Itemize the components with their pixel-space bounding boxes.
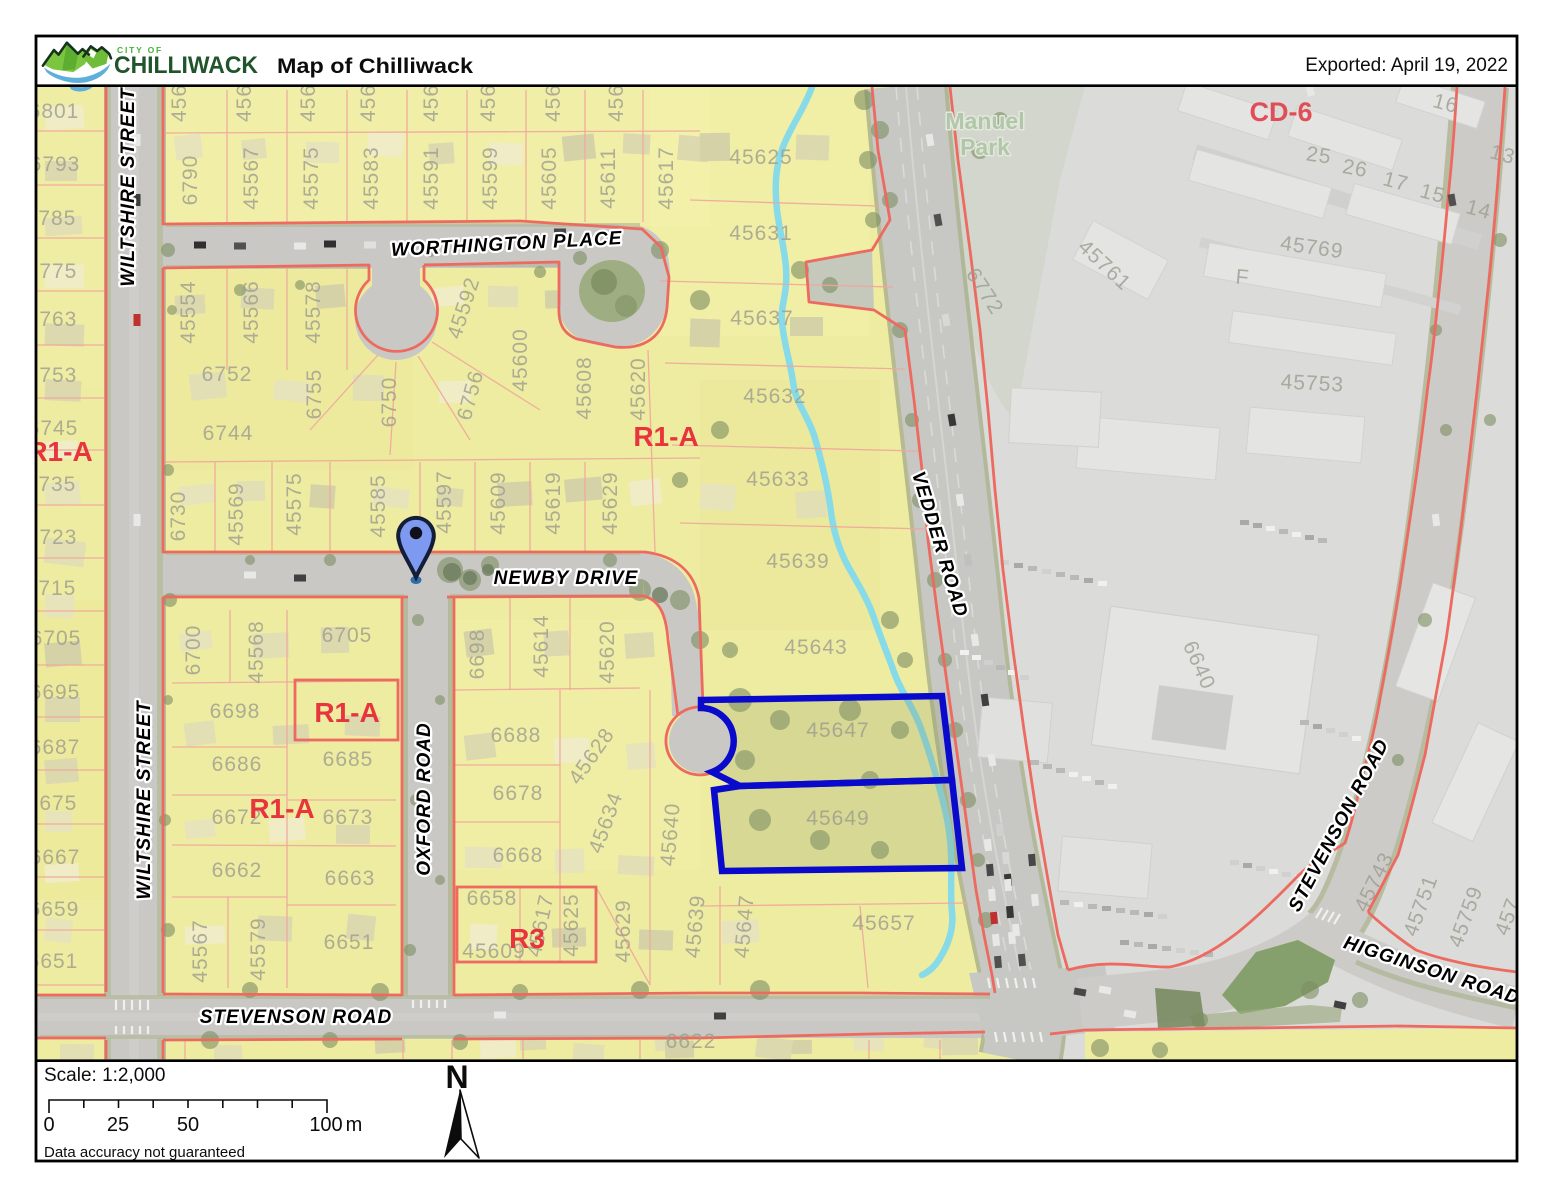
svg-text:CD-6: CD-6 (1249, 97, 1312, 127)
svg-text:45629: 45629 (599, 471, 622, 534)
svg-text:R1-A: R1-A (633, 421, 698, 452)
svg-text:45619: 45619 (542, 471, 565, 534)
svg-text:456: 456 (542, 84, 565, 122)
svg-text:WILTSHIRE STREET: WILTSHIRE STREET (134, 700, 155, 900)
svg-text:45575: 45575 (283, 472, 306, 535)
svg-text:6663: 6663 (325, 867, 376, 890)
svg-text:6651: 6651 (324, 931, 375, 954)
svg-text:45591: 45591 (420, 146, 443, 209)
svg-text:45637: 45637 (730, 307, 793, 330)
svg-text:45632: 45632 (743, 385, 806, 408)
svg-text:45617: 45617 (655, 146, 678, 209)
svg-text:Scale: 1:2,000: Scale: 1:2,000 (44, 1065, 165, 1086)
svg-text:45575: 45575 (300, 146, 323, 209)
svg-text:45579: 45579 (247, 917, 270, 980)
svg-text:100: 100 (309, 1114, 342, 1136)
svg-text:45643: 45643 (784, 636, 847, 659)
svg-text:45567: 45567 (240, 146, 263, 209)
svg-text:45614: 45614 (530, 614, 553, 677)
svg-text:Exported: April 19, 2022: Exported: April 19, 2022 (1305, 55, 1508, 76)
svg-text:6658: 6658 (467, 887, 518, 910)
svg-text:NEWBY DRIVE: NEWBY DRIVE (494, 568, 639, 589)
svg-text:6705: 6705 (322, 624, 373, 647)
svg-text:6750: 6750 (378, 377, 401, 428)
svg-text:6700: 6700 (182, 625, 205, 676)
svg-text:456: 456 (420, 84, 443, 122)
svg-text:45599: 45599 (479, 146, 502, 209)
svg-text:Manuel: Manuel (945, 108, 1024, 134)
svg-text:6698: 6698 (210, 700, 261, 723)
svg-text:6755: 6755 (303, 369, 326, 420)
svg-text:45639: 45639 (766, 550, 829, 573)
svg-text:456: 456 (477, 84, 500, 122)
svg-text:45611: 45611 (597, 147, 620, 209)
svg-text:6685: 6685 (323, 748, 374, 771)
svg-text:6673: 6673 (323, 806, 374, 829)
svg-text:STEVENSON ROAD: STEVENSON ROAD (200, 1007, 392, 1028)
svg-text:25: 25 (107, 1114, 129, 1136)
svg-text:R1-A: R1-A (314, 697, 379, 728)
svg-text:45567: 45567 (189, 919, 212, 982)
svg-text:WILTSHIRE STREET: WILTSHIRE STREET (118, 87, 139, 287)
svg-text:R3: R3 (509, 923, 545, 954)
svg-text:45608: 45608 (573, 356, 596, 419)
svg-text:45629: 45629 (612, 899, 635, 962)
svg-text:456: 456 (168, 84, 191, 122)
svg-text:45620: 45620 (596, 620, 619, 683)
svg-text:45585: 45585 (367, 474, 390, 537)
svg-text:45605: 45605 (538, 146, 561, 209)
svg-text:6698: 6698 (466, 629, 489, 680)
svg-text:m: m (346, 1114, 363, 1136)
svg-text:45568: 45568 (245, 620, 268, 683)
svg-text:6668: 6668 (493, 844, 544, 867)
svg-text:6744: 6744 (203, 422, 254, 445)
svg-text:25: 25 (1305, 142, 1333, 168)
svg-text:45583: 45583 (360, 146, 383, 209)
svg-text:45625: 45625 (729, 146, 792, 169)
svg-text:N: N (445, 1059, 468, 1095)
svg-text:45625: 45625 (560, 893, 583, 956)
svg-text:R1-A: R1-A (249, 793, 314, 824)
svg-text:0: 0 (43, 1114, 54, 1136)
svg-text:45753: 45753 (1280, 370, 1345, 396)
svg-text:45633: 45633 (746, 468, 809, 491)
svg-text:456: 456 (233, 84, 256, 122)
svg-text:Park: Park (960, 134, 1010, 160)
svg-text:CHILLIWACK: CHILLIWACK (114, 52, 259, 79)
svg-text:45620: 45620 (627, 357, 650, 420)
svg-text:45631: 45631 (729, 222, 792, 245)
svg-text:6678: 6678 (493, 782, 544, 805)
svg-text:45554: 45554 (177, 280, 200, 343)
svg-text:6705: 6705 (31, 627, 82, 650)
svg-text:26: 26 (1341, 155, 1370, 182)
svg-text:Data accuracy not guaranteed: Data accuracy not guaranteed (44, 1144, 245, 1161)
svg-text:6688: 6688 (491, 724, 542, 747)
svg-text:45657: 45657 (852, 912, 915, 935)
svg-text:456: 456 (357, 84, 380, 122)
svg-text:45600: 45600 (509, 328, 532, 391)
svg-text:45649: 45649 (806, 807, 869, 830)
svg-text:456: 456 (605, 84, 628, 122)
svg-text:45647: 45647 (806, 719, 869, 742)
svg-text:45566: 45566 (240, 280, 263, 343)
svg-text:456: 456 (297, 84, 320, 122)
svg-text:Map of Chilliwack: Map of Chilliwack (277, 55, 473, 78)
svg-text:45609: 45609 (487, 471, 510, 534)
svg-text:45578: 45578 (302, 280, 325, 343)
svg-text:6730: 6730 (167, 491, 190, 542)
svg-text:6790: 6790 (179, 155, 202, 206)
svg-text:6686: 6686 (212, 753, 263, 776)
svg-text:50: 50 (177, 1114, 199, 1136)
svg-text:F: F (1235, 265, 1251, 289)
svg-text:45569: 45569 (225, 482, 248, 545)
svg-text:6662: 6662 (212, 859, 263, 882)
svg-text:45597: 45597 (433, 470, 456, 533)
svg-text:6752: 6752 (202, 363, 253, 386)
svg-text:OXFORD ROAD: OXFORD ROAD (414, 722, 435, 876)
svg-text:6622: 6622 (666, 1030, 717, 1053)
